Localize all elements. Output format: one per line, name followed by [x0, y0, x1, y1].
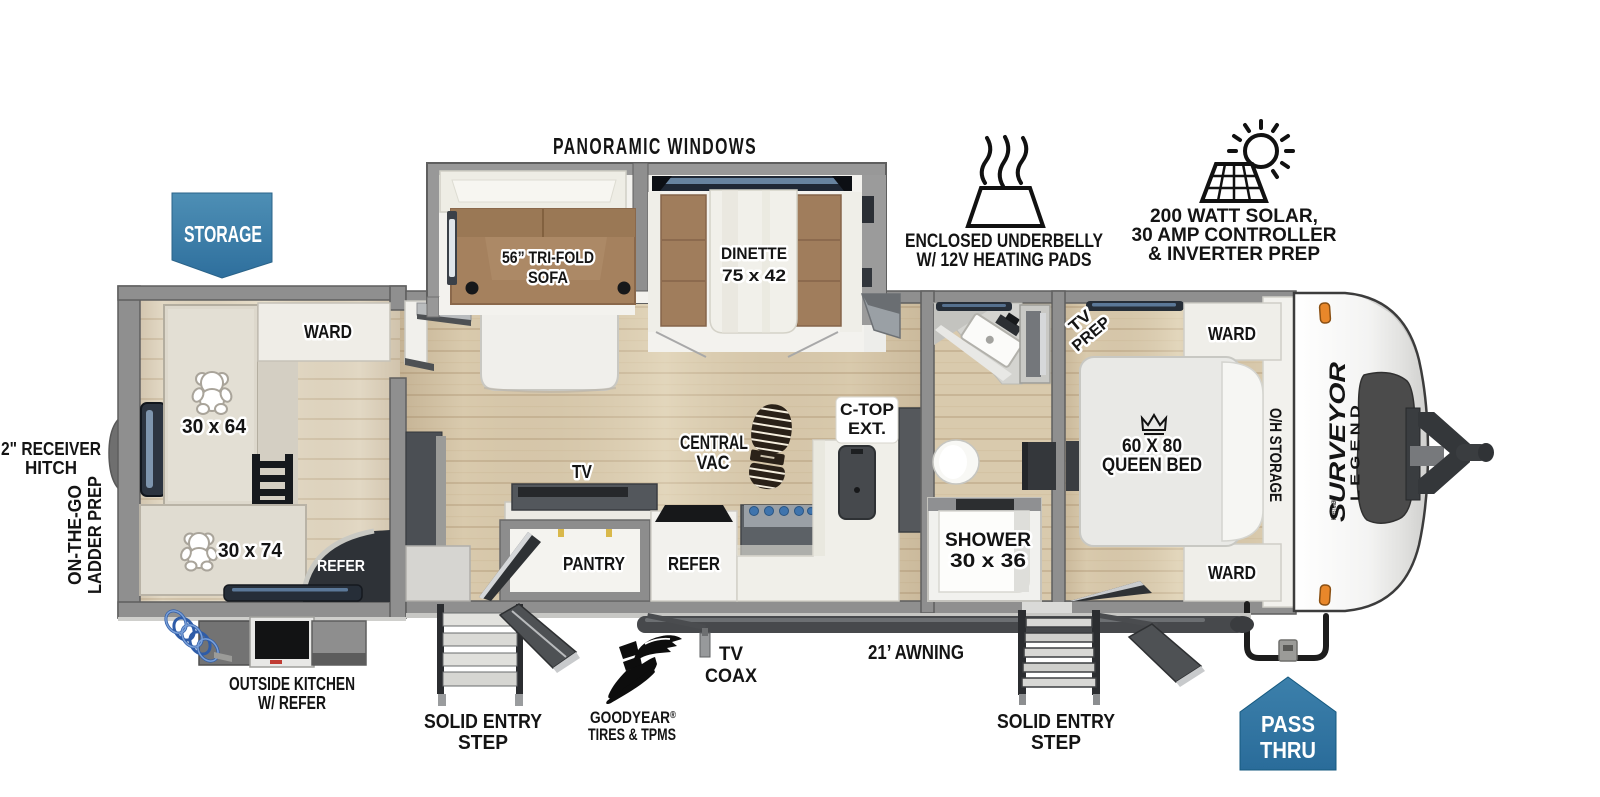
- svg-text:200 WATT SOLAR,: 200 WATT SOLAR,: [1150, 206, 1318, 227]
- svg-text:CENTRAL: CENTRAL: [680, 433, 748, 454]
- svg-text:STORAGE: STORAGE: [184, 221, 262, 247]
- svg-text:DINETTE: DINETTE: [721, 244, 787, 263]
- svg-text:30 x 64: 30 x 64: [182, 416, 247, 438]
- svg-text:PASS: PASS: [1261, 711, 1315, 737]
- svg-text:SURVEYOR: SURVEYOR: [1325, 362, 1350, 522]
- svg-text:75 x 42: 75 x 42: [722, 266, 786, 285]
- svg-text:ON-THE-GO: ON-THE-GO: [65, 485, 85, 585]
- svg-text:30 x 36: 30 x 36: [950, 551, 1026, 572]
- svg-text:SOLID ENTRY: SOLID ENTRY: [997, 711, 1116, 733]
- svg-text:QUEEN BED: QUEEN BED: [1102, 455, 1202, 476]
- svg-text:PANTRY: PANTRY: [563, 554, 625, 574]
- svg-text:21’ AWNING: 21’ AWNING: [868, 642, 964, 664]
- svg-text:LEGEND: LEGEND: [1348, 401, 1363, 501]
- svg-text:VAC: VAC: [697, 453, 730, 474]
- svg-text:SOLID ENTRY: SOLID ENTRY: [424, 711, 543, 733]
- svg-text:TV: TV: [572, 462, 592, 482]
- svg-text:PANORAMIC WINDOWS: PANORAMIC WINDOWS: [553, 133, 757, 159]
- svg-text:EXT.: EXT.: [848, 419, 886, 438]
- svg-text:FOREST RIVER: FOREST RIVER: [1331, 500, 1338, 520]
- svg-text:30 AMP CONTROLLER: 30 AMP CONTROLLER: [1132, 225, 1337, 246]
- svg-text:STEP: STEP: [458, 732, 508, 754]
- svg-text:THRU: THRU: [1260, 737, 1316, 763]
- svg-text:REFER: REFER: [317, 558, 365, 575]
- svg-text:60 X 80: 60 X 80: [1122, 436, 1182, 457]
- svg-text:SHOWER: SHOWER: [945, 530, 1031, 551]
- svg-text:ENCLOSED UNDERBELLY: ENCLOSED UNDERBELLY: [905, 231, 1103, 252]
- svg-text:TV: TV: [719, 644, 743, 665]
- svg-text:OUTSIDE KITCHEN: OUTSIDE KITCHEN: [229, 674, 355, 694]
- svg-text:WARD: WARD: [1208, 563, 1256, 583]
- svg-text:W/ REFER: W/ REFER: [258, 693, 326, 713]
- svg-text:O/H STORAGE: O/H STORAGE: [1266, 408, 1285, 502]
- svg-text:56” TRI-FOLD: 56” TRI-FOLD: [502, 248, 594, 267]
- svg-text:TIRES & TPMS: TIRES & TPMS: [588, 725, 676, 744]
- svg-text:WARD: WARD: [1208, 324, 1256, 344]
- svg-text:HITCH: HITCH: [25, 458, 77, 478]
- svg-text:WARD: WARD: [304, 322, 352, 342]
- svg-text:STEP: STEP: [1031, 732, 1081, 754]
- svg-text:COAX: COAX: [705, 666, 757, 687]
- svg-text:C-TOP: C-TOP: [840, 400, 894, 419]
- svg-text:2" RECEIVER: 2" RECEIVER: [1, 439, 101, 459]
- svg-text:SOFA: SOFA: [528, 268, 568, 287]
- svg-text:REFER: REFER: [668, 554, 720, 574]
- svg-text:30 x 74: 30 x 74: [218, 540, 283, 562]
- svg-text:& INVERTER PREP: & INVERTER PREP: [1148, 244, 1320, 265]
- svg-text:LADDER PREP: LADDER PREP: [85, 476, 105, 594]
- svg-text:W/ 12V HEATING PADS: W/ 12V HEATING PADS: [917, 250, 1092, 271]
